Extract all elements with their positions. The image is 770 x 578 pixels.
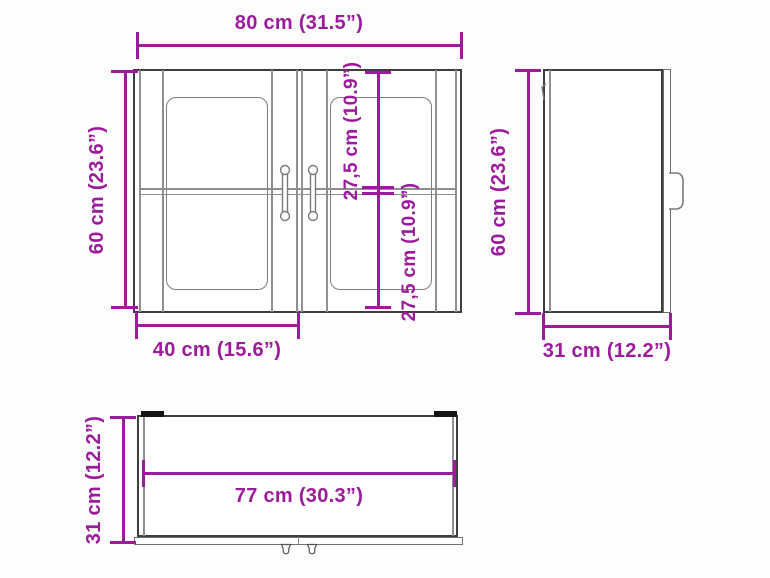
dim-top-depth-line [122, 417, 125, 543]
knob-right-icon [306, 544, 318, 555]
dim-tick [111, 70, 138, 73]
knob-left-icon [280, 544, 292, 555]
dim-door-width-label: 40 cm (15.6”) [117, 339, 317, 361]
dim-tick [453, 460, 456, 487]
dim-side-depth-label: 31 cm (12.2”) [507, 340, 707, 362]
dimension-diagram: 80 cm (31.5”) 60 cm (23.6”) 27,5 cm (10.… [0, 0, 770, 578]
front-stile-line [162, 70, 164, 312]
dim-tick [136, 32, 139, 59]
dim-tick [362, 186, 394, 189]
dim-overall-width-line [137, 44, 461, 47]
dim-tick [515, 69, 541, 72]
dim-tick [515, 312, 541, 315]
dim-tick [460, 32, 463, 59]
dim-top-depth-label: 31 cm (12.2”) [83, 400, 105, 560]
front-door-gap-line [301, 70, 303, 312]
front-door-gap-line [296, 70, 298, 312]
top-cabinet-body [137, 415, 458, 537]
dim-tick [669, 313, 672, 340]
dim-tick [542, 313, 545, 340]
dim-tick [110, 541, 136, 544]
dim-door-width-line [136, 324, 298, 327]
dim-tick [365, 306, 391, 309]
door-handle-right-icon [306, 163, 320, 223]
top-door-gap-line [298, 537, 300, 545]
dim-tick [110, 416, 136, 419]
dim-tick [111, 306, 138, 309]
dim-front-height-line [124, 71, 127, 309]
dim-side-height-label: 60 cm (23.6”) [488, 112, 510, 272]
dim-tick [135, 312, 138, 339]
hinge-mark-right [434, 411, 457, 417]
front-stile-line [435, 70, 437, 312]
door-handle-left-icon [278, 163, 292, 223]
dim-side-height-line [527, 70, 530, 314]
wall-bracket-icon [538, 83, 548, 101]
side-cabinet-body [543, 69, 663, 313]
dim-inner-width-line [143, 472, 455, 475]
dim-sections-line [377, 72, 380, 308]
side-inner-line [549, 70, 551, 312]
front-inner-line-left [139, 70, 141, 312]
front-stile-line [271, 70, 273, 312]
side-handle-icon [669, 166, 687, 216]
dim-tick [297, 312, 300, 339]
dim-lower-section-label: 27,5 cm (10.9”) [399, 177, 421, 327]
front-stile-line [326, 70, 328, 312]
dim-tick [142, 460, 145, 487]
front-inner-line-right [455, 70, 457, 312]
dim-overall-width-label: 80 cm (31.5”) [137, 12, 461, 34]
dim-inner-width-label: 77 cm (30.3”) [199, 485, 399, 507]
dim-tick [365, 71, 391, 74]
hinge-mark-left [141, 411, 164, 417]
dim-upper-section-label: 27,5 cm (10.9”) [341, 56, 363, 206]
dim-front-height-label: 60 cm (23.6”) [86, 110, 108, 270]
dim-tick [362, 192, 394, 195]
dim-side-depth-line [543, 325, 670, 328]
